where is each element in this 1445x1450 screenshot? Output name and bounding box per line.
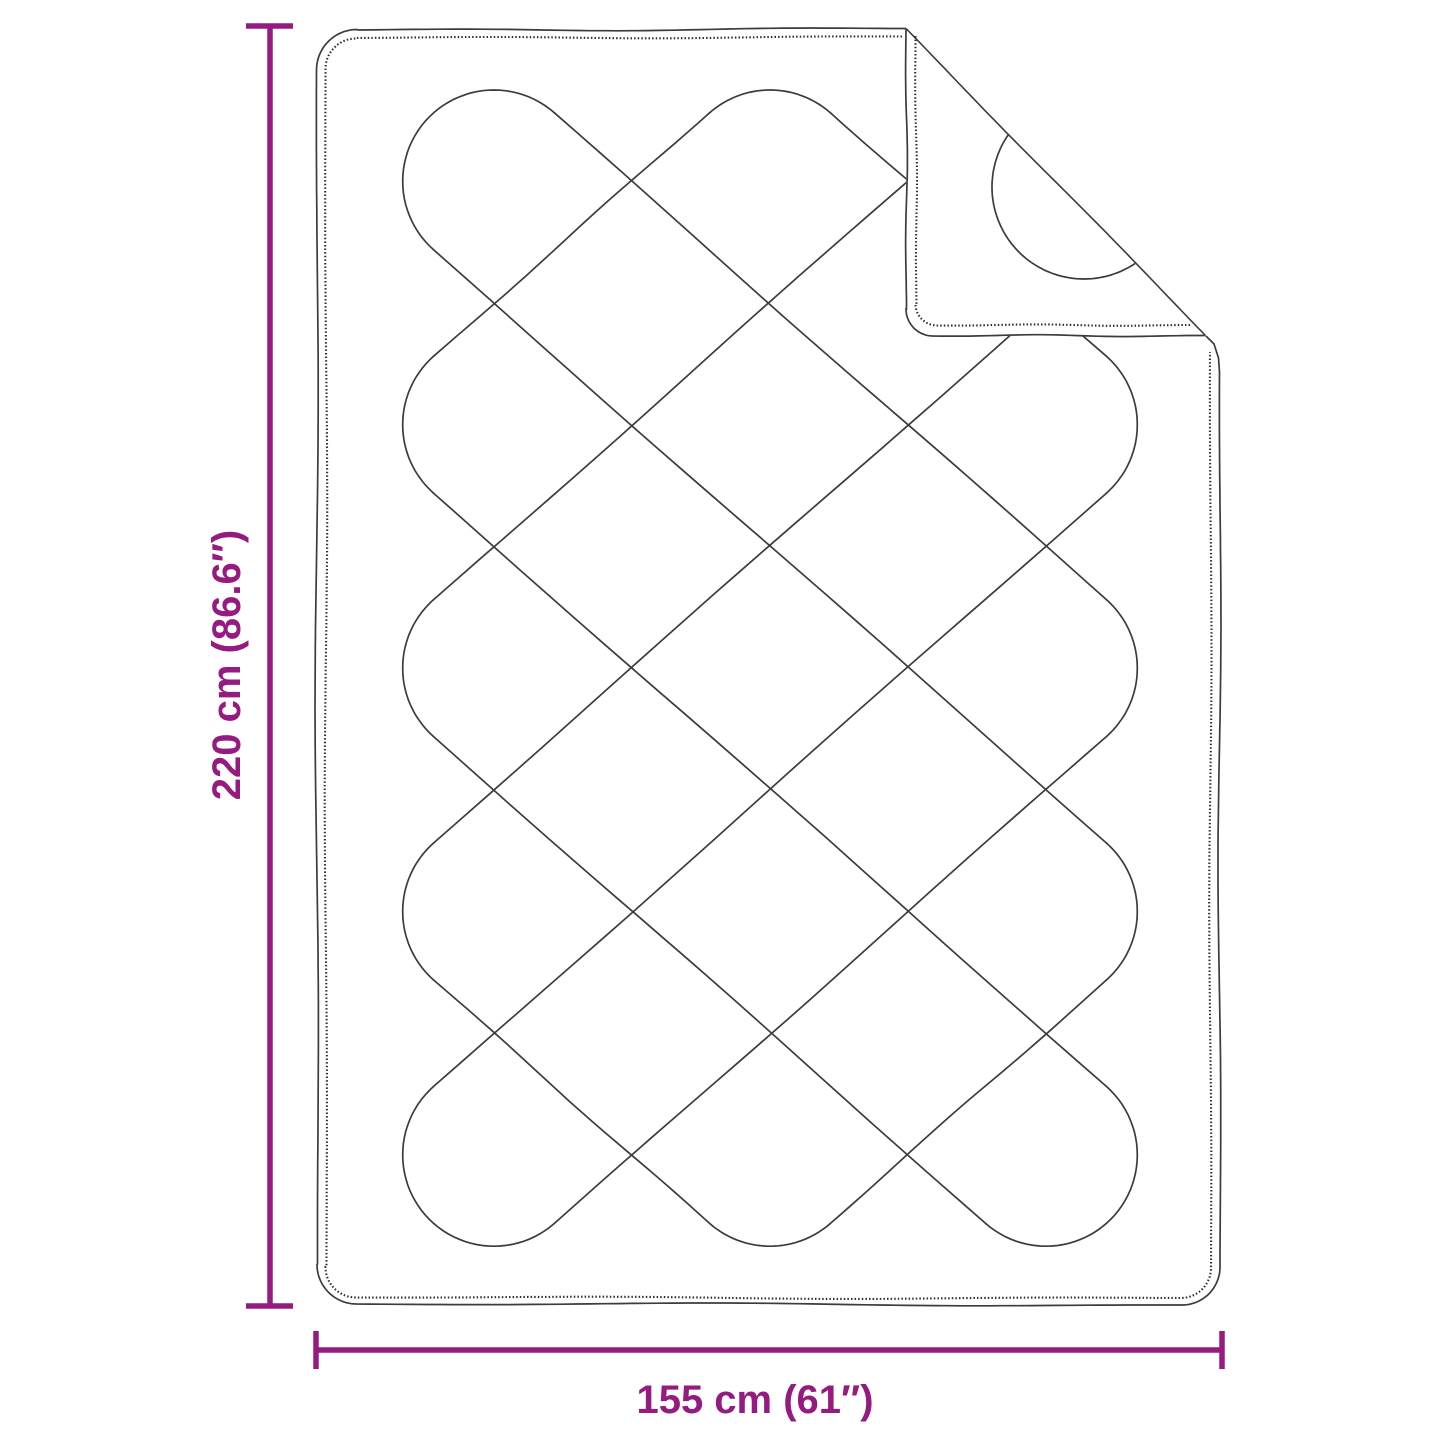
svg-text:155 cm (61″): 155 cm (61″) [636,1378,873,1422]
svg-text:220 cm (86.6″): 220 cm (86.6″) [205,530,249,800]
